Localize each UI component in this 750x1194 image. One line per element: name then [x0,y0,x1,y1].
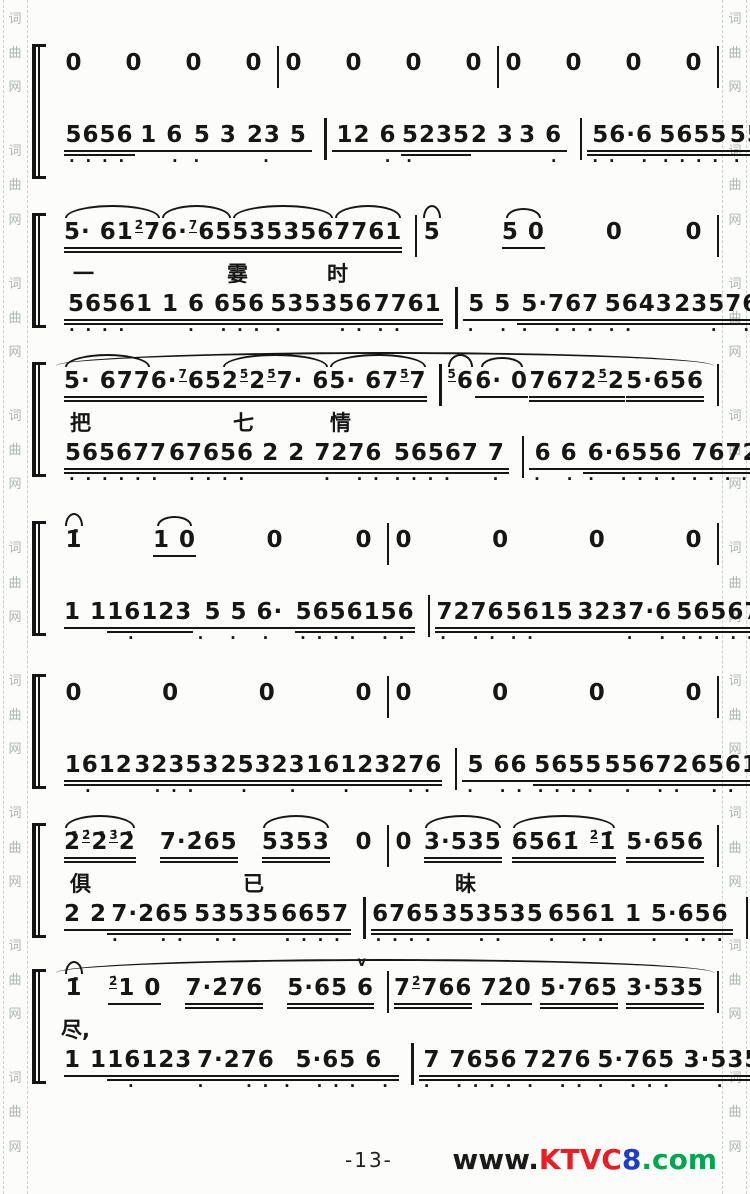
slur-slot [587,511,607,527]
octave-dots: · [64,787,134,797]
note-text: 6·765 [151,368,222,394]
slur-arc-icon [65,815,135,828]
note-text: 67656 [169,440,254,466]
octave-dots [354,562,359,572]
note-text: 5615 [506,599,574,625]
melody-line: 00000000 [58,664,718,725]
note-text: 1612 [65,752,133,778]
note-group: 1̇ [64,959,84,1020]
slur-slot [232,203,334,219]
slur-slot [244,34,264,50]
note-group: 6765···· [371,901,442,946]
border-char: 曲 [728,1096,741,1130]
note-text: 1 6 [140,122,183,148]
accompaniment-line: 1 116123 · 7·276· ··5·65 6· ··· ·7 7656·… [58,1047,718,1092]
octave-dots: ·· ·· [690,787,750,797]
note-group: 12 6 · [332,122,402,167]
note-group: 3 6 · [514,122,568,167]
measure: 5656····1 6 ·5 3· 23 5 · [58,122,326,187]
octave-dots [422,254,427,264]
note-group: 5·656 [626,352,704,413]
slur-slot [354,813,374,829]
note-group: 7·276· ·· [193,1047,280,1092]
slur-slot [491,664,511,680]
octave-dots: · ·· [435,634,506,644]
measure: 5 5· ·5·767· ···5643·· 23576 · · [457,291,750,336]
beam-line [108,1003,161,1005]
measure: 0000 [388,511,718,572]
watermark-www: www. [452,1143,538,1176]
system-bracket-icon [32,521,46,636]
note-text: 5655 [659,122,727,148]
note-text: 5· 612̇7 [64,219,161,245]
beam-slot [471,148,514,157]
note-text: 1 0 [153,527,196,553]
octave-dots: · ·· [193,1082,280,1092]
note-text: 0 [606,219,623,245]
beam-line [64,929,107,931]
system-1: 0000000000005656····1 6 ·5 3· 23 5 · 12 … [32,34,718,187]
beam-slot [394,706,414,715]
lyric: 尽, [61,1018,90,1043]
note-group: 5 3· [189,122,243,167]
grace-note: 7 [189,218,197,233]
beam-slot [394,855,414,864]
melody-line: 1̇1 0000000 [58,511,718,572]
note-text: 5· 677 [64,368,151,394]
beam-line [626,861,704,863]
octave-dots: ···· [658,157,729,167]
note-text: 23 5 [247,122,307,148]
octave-dots: ·· [442,936,544,946]
octave-dots: ···· [371,936,442,946]
octave-dots [394,562,399,572]
slur-slot [354,664,374,680]
border-char: 曲 [728,566,741,600]
melody-line: 1̇2̇1 07·2̇76v5·65 672̇76672̇05·7653·535 [58,959,718,1020]
left-border: 词曲网词曲网词曲网词曲网词曲网词曲网词曲网词曲网词曲网 [0,0,30,1194]
beam-slot [512,855,616,864]
beam-line [161,251,232,253]
note-group: 0 [587,664,607,725]
note-group: 6 656· ··· [183,291,270,336]
note-group: 1 0 [153,511,196,572]
note-text: 6 656 [188,291,265,317]
octave-dots [185,1010,190,1020]
slur-slot [334,203,402,219]
beam-slot [64,625,107,634]
octave-dots: · ·· [680,1082,750,1092]
note-group: 2 2 [64,901,107,946]
measure: 1̇1 000 [58,511,388,572]
octave-dots [64,254,69,264]
beam-line [626,1007,704,1009]
octave-dots [160,864,165,874]
note-group: 0 [504,34,524,95]
note-text: 5655 [534,752,602,778]
slur-slot [394,813,414,829]
note-group: 7276· ·· [522,1047,593,1092]
note-group: 7761·· [373,291,443,336]
note-text: 0 [685,50,702,76]
note-text: 0 [685,680,702,706]
slur-slot [262,813,330,829]
slur-slot [604,203,624,219]
note-text: 5 5 6· [205,599,284,625]
octave-dots [64,715,69,725]
note-text: 0 [355,829,372,855]
note-group: 0 [404,34,424,95]
accompaniment-line: 1 116123 · 5 5 6·· · · 5656156···· ··727… [58,599,718,644]
note-text: 5·656 [651,901,729,927]
beam-slot [354,706,374,715]
slur-slot [284,34,304,50]
beam-slot [64,706,84,715]
octave-dots: ·· [604,326,674,336]
beam-slot [185,1001,263,1010]
grace-note: 5̇ [598,367,606,382]
note-text: 56561 1 [68,291,179,317]
octave-dots [394,715,399,725]
slur-slot [265,511,285,527]
measure: 5· 612̇76·7655353567761 [58,203,416,264]
note-text: 535356 [270,291,372,317]
octave-dots [626,1010,631,1020]
beam-line [64,251,161,253]
page-number: -13- [345,1148,393,1172]
measure: 2 27·265· ··53535 ·· 6657···· [58,901,365,946]
note-text: 5656 [65,122,133,148]
beam-line [160,861,238,863]
octave-dots: · ··· [593,1082,680,1092]
beam-slot [64,394,151,403]
beam-slot [244,76,264,85]
border-char: 曲 [8,963,21,997]
border-char: 曲 [8,831,21,865]
lyric: 已 [243,872,264,897]
octave-dots: ·· [194,936,280,946]
note-group: 6657···· [280,901,351,946]
score: 0000000000005656····1 6 ·5 3· 23 5 · 12 … [32,0,718,1108]
octave-dots [604,254,609,264]
note-text: 6561̇ 2̇1̇ [512,829,616,855]
lyric: 俱 [70,872,91,897]
note-text: 76725̇2 [529,368,624,394]
note-text: 1 1 [64,599,107,625]
beam-slot [502,245,545,254]
note-group: 0 [64,34,84,95]
note-group: 0 [354,664,374,725]
slur-slot [684,511,704,527]
note-group: 535356· ·· [270,291,373,336]
octave-dots: ···· ·· [295,634,415,644]
note-text: 5·65 6 [287,975,374,1001]
note-text: 0 [185,50,202,76]
note-group: 5656156···· ·· [295,599,415,644]
note-text: 0 [266,527,283,553]
note-text: 0 [65,680,82,706]
note-group: 7672 2···· · [687,440,750,485]
note-text: 0 [589,680,606,706]
system-6: 2̇2̇2̇3̇2̇7·2̇655353003·5356561̇ 2̇1̇5·6… [32,813,718,946]
octave-dots: · [107,634,193,644]
octave-dots [540,1010,545,1020]
grace-note: 3̇ [109,828,117,843]
note-group: 6 6· · [529,440,583,485]
slur-arc-icon [423,205,441,218]
slur-arc-icon [263,815,329,828]
note-text: 0 [395,527,412,553]
lyric: 昧 [455,872,476,897]
octave-dots [161,715,166,725]
note-group: 25323 · · [220,752,306,797]
note-text: 5·656 [626,829,704,855]
beam-slot [64,245,161,254]
note-text: 25323 [221,752,306,778]
note-text: 7 7656 [423,1047,517,1073]
note-text: 5 66 [467,752,527,778]
note-text: 0 [355,680,372,706]
octave-dots [184,85,189,95]
measure: 1 116123 · 5 5 6·· · · 5656156···· ·· [58,599,429,644]
lyric: 七 [233,411,254,436]
note-group: 565677······ [64,440,168,485]
beam-slot [394,553,414,562]
octave-dots: · ··· [729,157,750,167]
note-text: 0 [125,50,142,76]
note-group: 7 7656· ···· [419,1047,523,1092]
beam-line [512,861,616,863]
note-text: 2̇1 0 [108,975,161,1001]
octave-dots: ·· · [587,157,658,167]
beam-slot [626,855,704,864]
octave-dots: · ·· [255,475,390,485]
beam-line [626,400,704,402]
note-group: 25̇25̇7· 6 [222,352,330,413]
note-text: 72̇0 [481,975,532,1001]
note-text: 0 [625,50,642,76]
note-text: 7761 [374,291,442,317]
slur-slot [161,203,232,219]
note-group: 5655···· [533,752,604,797]
note-text: 0 [345,50,362,76]
lyrics-line: 把七情 [58,413,718,440]
beam-slot [684,76,704,85]
measure: 12 6 ·5235· 2 33 6 · [326,122,582,187]
beam-slot [232,245,334,254]
note-group: 353535 ·· [442,901,544,946]
octave-dots: · · [220,787,306,797]
octave-dots [491,715,496,725]
beam-line [64,400,151,402]
note-group: 5·767· ··· [517,291,604,336]
border-char: 曲 [8,36,21,70]
note-group: 5· 612̇7 [64,203,161,264]
beam-slot [540,1001,618,1010]
note-text: 25̇25̇7· 6 [222,368,330,394]
note-text: 6561 1 [548,901,642,927]
note-text: 6·6556 [588,440,683,466]
note-text: 5643 [605,291,673,317]
beam-slot [504,76,524,85]
beam-slot [329,394,426,403]
beam-slot [491,553,511,562]
slur-slot [64,352,151,368]
octave-dots: ···· [64,157,135,167]
octave-dots: ··· [134,787,221,797]
note-group: 56567656········ [676,599,750,644]
note-text: 6657 [281,901,349,927]
note-group: 5 5· · [463,291,517,336]
border-char: 网 [8,71,21,105]
border-char: 网 [728,71,741,105]
note-group: 7276· ·· [435,599,506,644]
beam-slot [257,706,277,715]
note-text: 32353 [134,752,219,778]
note-group: 5· 677 [64,352,151,413]
border-char: 词 [728,399,741,433]
border-char: 词 [8,267,21,301]
beam-slot [64,1001,84,1010]
measure: 7276· ··5615·· 3237·6 · ·56567656·······… [429,599,750,644]
system-4: 1̇1 00000001 116123 · 5 5 6·· · · 565615… [32,511,718,644]
beam-slot [64,927,107,936]
octave-dots [504,85,509,95]
note-text: 6765 [372,901,440,927]
note-group: 5 [422,203,442,264]
beam-line [151,400,222,402]
note-group: 6· 0 [475,352,528,413]
beam-line [160,857,238,859]
octave-dots: · ·· [107,936,194,946]
note-text: 3·535 [626,975,704,1001]
note-group: 16123 · [107,1047,193,1092]
measure: 6765····353535 ·· 6561 1· ·· 5·656· ··· [365,901,748,946]
octave-dots: · [401,157,471,167]
lyrics-line [58,572,718,599]
note-text: 53535 [194,901,279,927]
note-text: 0 [685,527,702,553]
system-bracket-icon [32,674,46,789]
note-text: 5235 [402,122,470,148]
slur-slot [481,959,532,975]
note-text: 0 [395,680,412,706]
octave-dots [626,403,631,413]
slur-slot [422,203,442,219]
beam-line [529,400,624,402]
note-group: 0 [244,34,264,95]
beam-slot [262,855,330,864]
slur-slot [222,352,330,368]
measure: 7 7656· ····7276· ··5·765· ···3·5356 · ·… [413,1047,750,1092]
octave-dots [684,85,689,95]
note-text: 2 2 [64,901,107,927]
beam-slot [161,245,232,254]
slur-slot [64,664,84,680]
note-group: 0 [354,511,374,572]
border-char: 网 [728,865,741,899]
note-text: 0 [405,50,422,76]
note-text: 5 [424,219,441,245]
note-group: 2 3 [471,122,514,167]
grace-note: 2̇ [109,974,117,989]
octave-dots: · ··· [646,936,733,946]
border-char: 词 [8,532,21,566]
note-group: 2̇1 0 [108,959,161,1020]
octave-dots: · ·· [306,787,441,797]
beam-slot [354,553,374,562]
beam-line [424,857,502,859]
note-group: 0 [284,34,304,95]
measure: 1̇2̇1 07·2̇76v5·65 6 [58,959,388,1020]
beam-line [161,247,232,249]
border-char: 词 [8,1062,21,1096]
note-text: 0 [565,50,582,76]
system-7: 1̇2̇1 07·2̇76v5·65 672̇76672̇05·7653·535… [32,959,718,1092]
beam-slot [464,76,484,85]
note-text: 7672 2 [691,440,750,466]
octave-dots [626,864,631,874]
slur-slot [684,664,704,680]
measure: 1 116123 · 7·276· ··5·65 6· ··· · [58,1047,413,1092]
octave-dots [394,864,399,874]
slur-slot [504,34,524,50]
octave-dots [64,634,69,644]
measure: 0000 [58,34,278,95]
note-text: 0 [285,50,302,76]
octave-dots: ···· · [687,475,750,485]
border-char: 曲 [728,36,741,70]
octave-dots [404,85,409,95]
slur-slot [464,34,484,50]
breath-mark-icon: v [358,956,366,969]
note-group: 5235· [401,122,471,167]
octave-dots [394,1010,399,1020]
border-char: 曲 [8,434,21,468]
lyric: 霎 [227,262,248,287]
grace-note: 2̇ [82,828,90,843]
beam-slot [64,76,84,85]
beam-line [626,396,704,398]
left-border-dashed-line [3,0,4,1194]
system-bracket-icon [32,969,46,1084]
slur-slot: v [287,959,374,975]
grace-note: 5̇ [240,367,248,382]
octave-dots [475,403,480,413]
border-char: 网 [728,335,741,369]
octave-dots: · [107,1082,193,1092]
lyrics-line [58,725,718,752]
note-text: 0 [492,680,509,706]
slur-slot [626,352,704,368]
note-group: 32353 ··· [134,752,221,797]
slur-arc-icon [425,815,501,828]
note-group: 56·6·· · [587,122,658,167]
beam-line [540,1003,618,1005]
note-text: 5 3 [194,122,237,148]
note-text: 3 6 [519,122,562,148]
beam-line [424,861,502,863]
watermark: www.KTVC8.com [452,1146,717,1174]
beam-slot [344,76,364,85]
note-text: 3237·6 [577,599,672,625]
note-group: 535356 [232,203,334,264]
slur-arc-icon [513,815,615,828]
note-text: 23576 [674,291,750,317]
note-group: 0 [684,203,704,264]
octave-dots: ········ [676,634,750,644]
beam-line [475,396,528,398]
